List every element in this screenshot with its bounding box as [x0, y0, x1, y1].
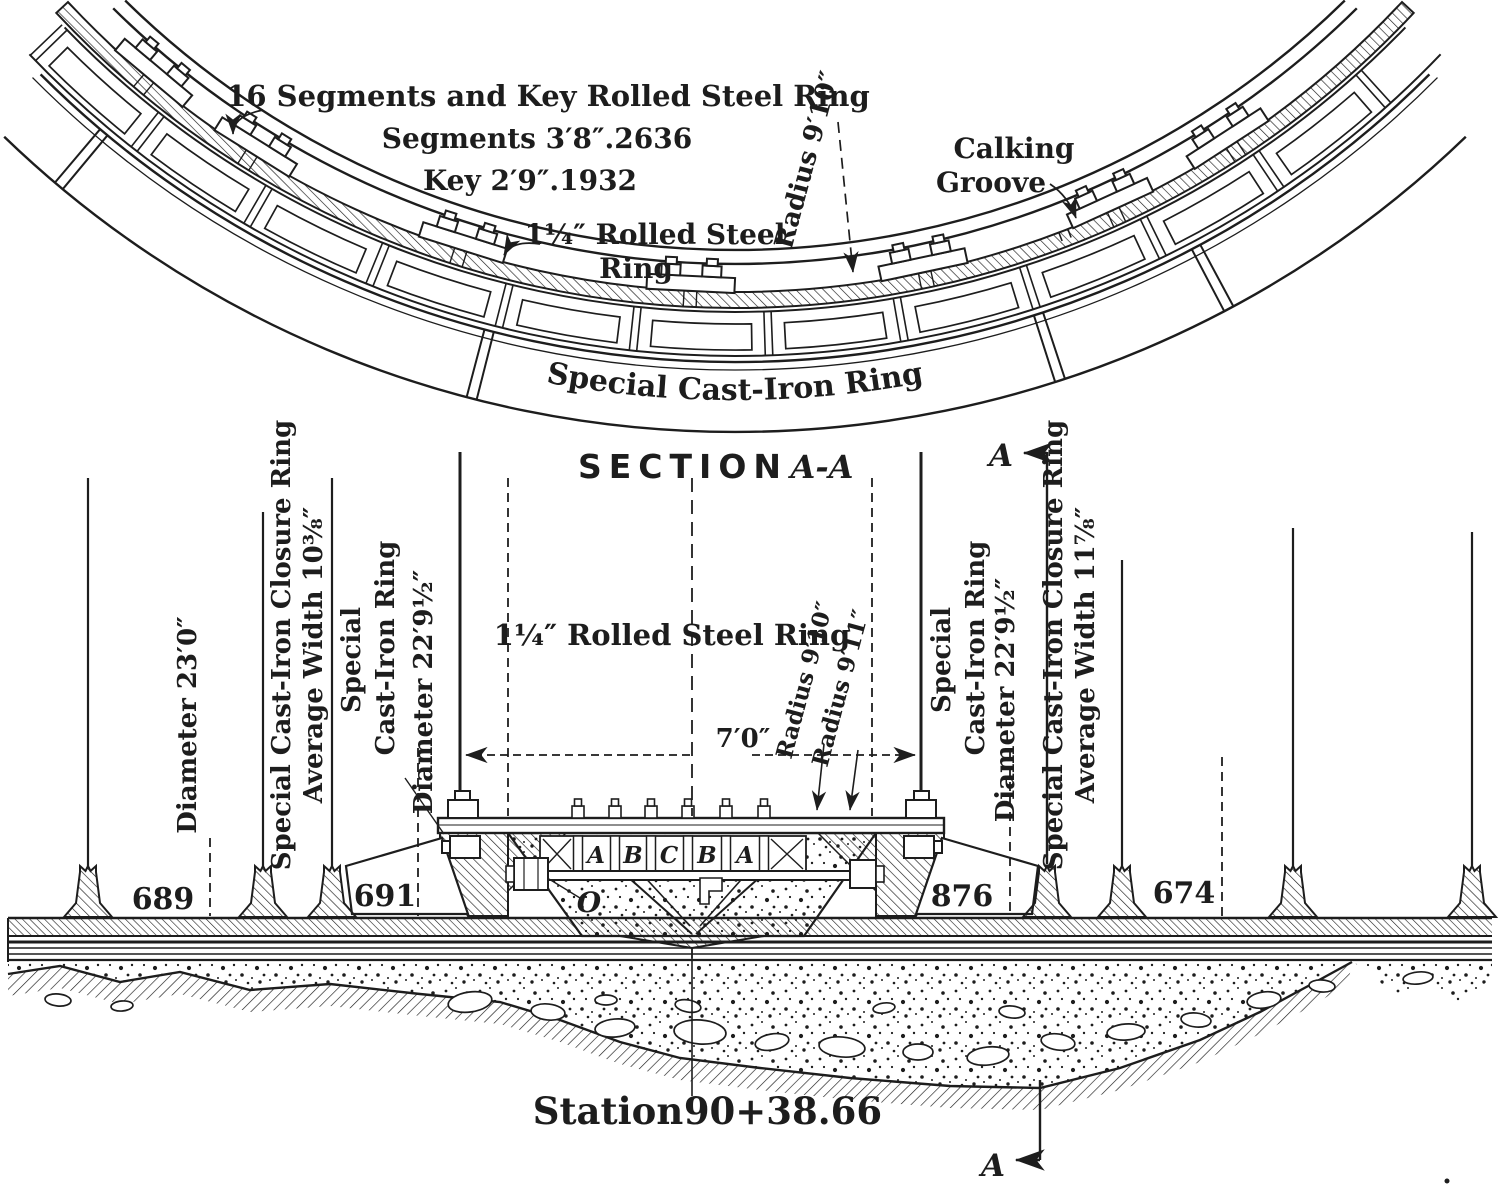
plan-panel-joint — [629, 307, 634, 351]
tie-rod-stub-right — [876, 866, 884, 882]
section-title-cut: A-A — [788, 448, 854, 486]
label-diameter-22-right: Diameter 22′9½″ — [991, 578, 1021, 823]
label-rolled-steel-ring: 1¼″ Rolled Steel Ring — [494, 618, 851, 652]
rect-shape — [647, 836, 656, 872]
tie-rod-stub-left — [506, 866, 514, 882]
plan-cast-joint — [1043, 312, 1065, 379]
rect-shape — [758, 806, 770, 818]
cell-letter-1: A — [585, 842, 605, 869]
label-closure-right-1: Special Cast-Iron Closure Ring — [1039, 420, 1069, 870]
engineering-drawing-page: 16 Segments and Key Rolled Steel Ring Se… — [0, 0, 1500, 1197]
plan-panel-joint — [771, 311, 773, 355]
drawing-canvas: 16 Segments and Key Rolled Steel Ring Se… — [0, 0, 1500, 1197]
rect-shape — [609, 806, 621, 818]
plan-lug-part — [932, 234, 944, 243]
rect-shape — [904, 836, 934, 858]
label-cast-left-1: Special — [337, 607, 367, 713]
plan-cast-joint — [467, 330, 485, 398]
segment-number-689: 689 — [132, 882, 195, 917]
rect-shape — [723, 799, 730, 806]
plan-panel-joint — [1140, 219, 1159, 259]
section-title: SECTION A-A — [578, 447, 853, 486]
plan-note-line2: Segments 3′8″.2636 — [382, 122, 692, 155]
flange-post — [64, 866, 112, 917]
plan-panel-joint — [366, 243, 383, 284]
rect-shape — [442, 841, 450, 853]
tie-rod — [548, 871, 850, 880]
cell-letter-2: B — [622, 842, 642, 869]
plan-panel-joint — [637, 307, 641, 351]
plan-panel-joint — [764, 312, 765, 356]
plan-calking-label-2: Groove — [936, 166, 1046, 199]
rect-shape — [612, 799, 619, 806]
plan-cast-joint — [1034, 315, 1055, 382]
label-closure-left-2: Average Width 10⅜″ — [299, 507, 329, 805]
plan-lug-part — [702, 265, 722, 277]
pebble — [45, 993, 72, 1007]
label-diameter-23: Diameter 23′0″ — [173, 616, 203, 833]
plan-panel-joint — [373, 246, 389, 287]
pebble — [595, 995, 617, 1005]
rect-shape — [914, 791, 929, 800]
cell-letter-5: A — [734, 842, 754, 869]
cell-letter-4: B — [696, 842, 716, 869]
plan-outer-arc-1 — [125, 1, 1345, 250]
plan-cast-joint — [477, 332, 494, 400]
rect-shape — [760, 836, 769, 872]
label-closure-left-1: Special Cast-Iron Closure Ring — [267, 420, 297, 870]
plan-rolled-ring-label-2: Ring — [599, 252, 673, 285]
label-diameter-22-left: Diameter 22′9½″ — [409, 570, 439, 815]
cut-letter-bottom: A — [978, 1148, 1005, 1184]
radius-leader-2 — [850, 750, 858, 810]
rect-shape — [685, 799, 692, 806]
segment-number-876: 876 — [931, 879, 994, 914]
plan-panel-joint — [1020, 268, 1033, 310]
rect-shape — [645, 806, 657, 818]
plan-panel-joint — [1026, 265, 1040, 307]
rect-shape — [761, 799, 768, 806]
tie-rod-bolt-left — [514, 858, 548, 890]
plan-hatch-joint — [683, 291, 684, 307]
plan-panel-joint — [893, 299, 901, 342]
station-label: Station — [533, 1089, 684, 1133]
label-width-dim: 7′0″ — [716, 724, 771, 754]
flange-post — [1448, 866, 1496, 917]
flange-post — [239, 866, 287, 917]
rect-shape — [572, 806, 584, 818]
plan-rolled-ring-label-1: 1¼″ Rolled Steel — [525, 218, 786, 251]
plan-calking-label-1: Calking — [953, 132, 1074, 165]
plan-panel-joint — [900, 297, 908, 340]
segment-number-674: 674 — [1153, 876, 1216, 911]
station-value: 90+38.66 — [684, 1089, 882, 1133]
plan-note-line1: 16 Segments and Key Rolled Steel Ring — [226, 79, 870, 113]
flange-post — [1098, 866, 1146, 917]
plan-radius-leader — [838, 122, 853, 272]
rect-shape — [720, 806, 732, 818]
plan-note-line3: Key 2′9″.1932 — [423, 164, 637, 197]
rect-shape — [448, 800, 478, 818]
plan-view-geometry — [4, 1, 1466, 432]
rect-shape — [722, 836, 731, 872]
section-title-word: SECTION — [578, 447, 788, 486]
rect-shape — [648, 799, 655, 806]
rect-shape — [934, 841, 942, 853]
plan-lug-part — [892, 243, 904, 252]
label-cast-right-1: Special — [927, 607, 957, 713]
rect-shape — [450, 836, 480, 858]
pebble — [903, 1044, 933, 1060]
plan-cast-joint — [63, 135, 108, 189]
cut-letter-top: A — [986, 438, 1013, 474]
plan-cast-ring-curved-label: Special Cast-Iron Ring — [544, 356, 925, 408]
rect-shape — [574, 836, 583, 872]
stray-dot — [1445, 1179, 1450, 1184]
flange-post — [1269, 866, 1317, 917]
plan-hatch-joint — [696, 291, 697, 307]
rect-shape — [906, 800, 936, 818]
label-cast-right-2: Cast-Iron Ring — [961, 541, 991, 756]
plan-segment-panel — [651, 320, 752, 350]
plan-cast-ring-curved-text: Special Cast-Iron Ring — [544, 356, 925, 408]
cell-letter-3: C — [660, 842, 679, 869]
plan-segment-panel — [517, 300, 620, 343]
rect-shape — [611, 836, 620, 872]
rect-shape — [684, 836, 693, 872]
rect-shape — [575, 799, 582, 806]
label-closure-right-2: Average Width 11⅞″ — [1071, 507, 1101, 805]
ground-layers — [8, 918, 1492, 1110]
segment-number-691: 691 — [354, 879, 417, 914]
origin-letter: O — [577, 886, 602, 919]
label-cast-left-2: Cast-Iron Ring — [371, 541, 401, 756]
plan-cast-joint — [55, 129, 100, 182]
tie-rod-bolt-right — [850, 860, 876, 888]
plate-bolts — [572, 799, 770, 818]
rect-shape — [455, 791, 470, 800]
plan-lug-part — [707, 259, 718, 267]
plan-segment-panel — [784, 312, 886, 348]
